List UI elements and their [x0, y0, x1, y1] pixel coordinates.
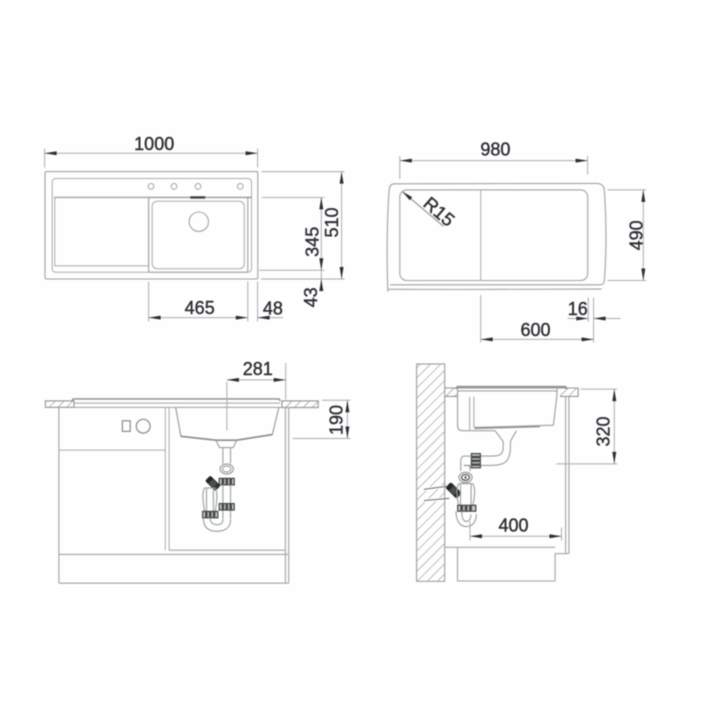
svg-text:400: 400	[498, 516, 528, 536]
svg-text:490: 490	[627, 220, 647, 250]
svg-text:600: 600	[520, 320, 550, 340]
svg-text:980: 980	[480, 140, 510, 160]
svg-text:1000: 1000	[134, 134, 174, 154]
svg-text:43: 43	[301, 287, 321, 307]
svg-text:510: 510	[322, 207, 342, 237]
svg-text:345: 345	[303, 227, 323, 257]
svg-text:320: 320	[594, 416, 614, 446]
svg-text:281: 281	[243, 359, 273, 379]
svg-text:465: 465	[185, 298, 215, 318]
svg-text:190: 190	[327, 405, 347, 435]
svg-text:16: 16	[568, 299, 588, 319]
svg-text:48: 48	[263, 298, 283, 318]
